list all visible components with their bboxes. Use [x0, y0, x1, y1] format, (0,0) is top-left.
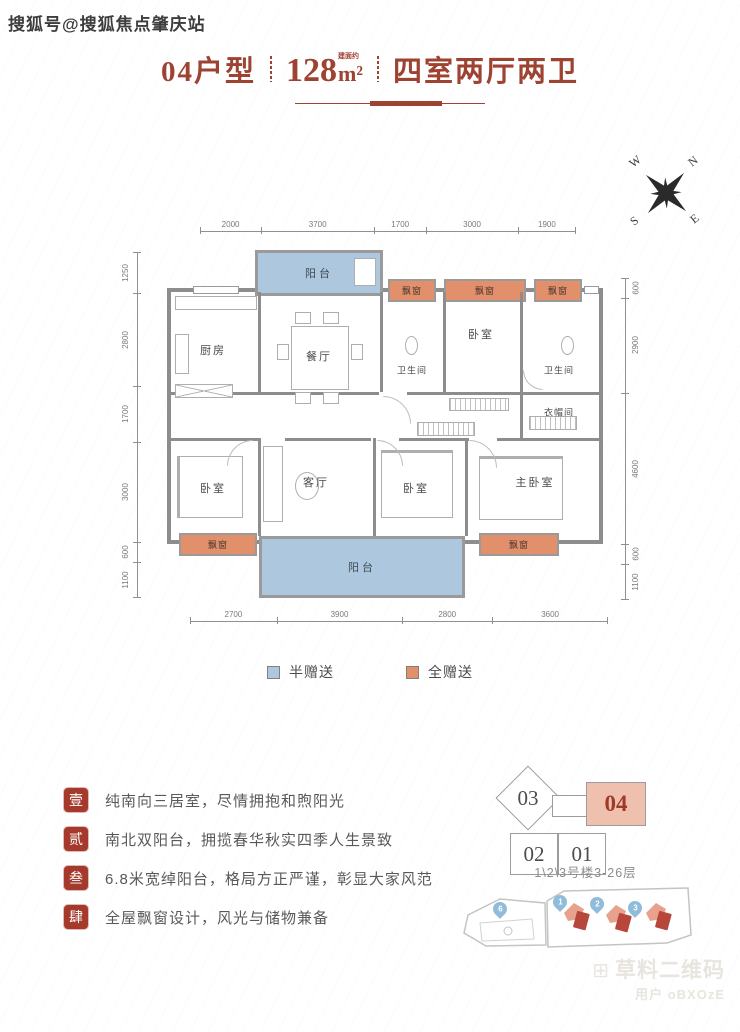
ac-platform	[175, 384, 233, 398]
bay-window-top-1: 飘窗	[388, 279, 436, 302]
bay-window-top-2: 飘窗	[444, 279, 526, 302]
half-gift-label: 半赠送	[289, 662, 334, 682]
room-label-cloakroom: 衣帽间	[544, 406, 574, 419]
chair	[351, 344, 363, 360]
site-plan-illustration	[452, 885, 697, 960]
room-count-label: 四室两厅两卫	[393, 48, 579, 90]
wall	[465, 438, 468, 536]
chair	[295, 392, 311, 404]
bay-label: 飘窗	[548, 284, 568, 297]
qr-watermark: ⊞ 草料二维码 用户 oBXOzE	[585, 958, 725, 1004]
title-divider	[270, 56, 272, 82]
feature-item: 叁 6.8米宽绰阳台，格局方正严谨，彰显大家风范	[64, 866, 433, 890]
page: 搜狐号@搜狐焦点肇庆站 04户型 128 建面约 m² 四室两厅两卫 W N S…	[0, 0, 740, 1032]
title-divider	[377, 56, 379, 82]
seal-numeral-4: 肆	[64, 905, 88, 929]
wardrobe	[417, 422, 475, 436]
window	[193, 286, 239, 294]
room-label-bath-2: 卫生间	[544, 364, 574, 377]
feature-text: 全屋飘窗设计，风光与储物兼备	[105, 907, 329, 928]
toilet	[405, 336, 418, 355]
room-label-living: 客厅	[303, 474, 329, 490]
title-bar: 04户型 128 建面约 m² 四室两厅两卫	[0, 48, 740, 90]
legend-half-gift: 半赠送	[267, 662, 334, 682]
qr-user: 用户 oBXOzE	[585, 987, 725, 1003]
unit-03: 03	[495, 765, 560, 830]
area-note: 建面约	[338, 51, 359, 61]
feature-item: 壹 纯南向三居室，尽情拥抱和煦阳光	[64, 788, 433, 812]
wall	[520, 292, 523, 392]
room-label-master-bedroom: 主卧室	[516, 474, 555, 490]
dimensions-top: 2000 3700 1700 3000 1900	[200, 222, 576, 234]
chair	[323, 312, 339, 324]
floor-plan: 阳台 飘窗 飘窗 飘窗 飘窗 阳台	[167, 250, 603, 602]
area-label: 128 建面约 m²	[286, 52, 363, 90]
compass-n: N	[685, 153, 701, 170]
room-label-bedroom-mid: 卧室	[403, 480, 429, 496]
room-label-dining: 餐厅	[306, 348, 332, 364]
wall	[285, 438, 371, 441]
seal-numeral-2: 贰	[64, 827, 88, 851]
sohu-watermark: 搜狐号@搜狐焦点肇庆站	[8, 10, 206, 35]
feature-item: 肆 全屋飘窗设计，风光与储物兼备	[64, 905, 433, 929]
wall	[399, 438, 469, 441]
kitchen-counter	[175, 296, 257, 310]
bay-label: 飘窗	[402, 284, 422, 297]
dimensions-bottom: 2700 3900 2800 3600	[190, 612, 608, 624]
bay-window-bottom-right: 飘窗	[479, 533, 559, 556]
unit-connector	[552, 795, 588, 817]
chair	[323, 392, 339, 404]
dimensions-right: 600 2900 4600 600 1100	[620, 278, 630, 600]
bay-label: 飘窗	[509, 538, 529, 551]
unit-type-label: 04户型	[161, 48, 256, 90]
qr-grid-icon: ⊞	[592, 959, 610, 984]
wall	[258, 292, 261, 392]
wall	[520, 392, 523, 441]
window	[584, 286, 599, 294]
seal-numeral-1: 壹	[64, 788, 88, 812]
balcony-bottom: 阳台	[259, 536, 465, 598]
balcony-bottom-label: 阳台	[348, 559, 376, 575]
chair	[277, 344, 289, 360]
bay-label: 飘窗	[475, 284, 495, 297]
feature-text: 6.8米宽绰阳台，格局方正严谨，彰显大家风范	[105, 868, 433, 889]
compass-w: W	[626, 152, 644, 170]
washer-icon	[354, 258, 376, 286]
wall	[443, 292, 446, 392]
qr-brand: 草料二维码	[615, 958, 725, 984]
wall	[380, 292, 383, 392]
compass-s: S	[627, 213, 641, 228]
feature-list: 壹 纯南向三居室，尽情拥抱和煦阳光 贰 南北双阳台，拥揽春华秋实四季人生景致 叁…	[64, 788, 433, 944]
legend-full-gift: 全赠送	[406, 662, 473, 682]
room-label-bedroom-top: 卧室	[468, 326, 494, 342]
building-caption: 1\2\3号楼3-26层	[498, 862, 673, 881]
bay-label: 飘窗	[208, 538, 228, 551]
full-gift-swatch	[406, 666, 419, 679]
toilet	[561, 336, 574, 355]
wall	[497, 438, 599, 441]
area-value: 128	[286, 52, 337, 90]
feature-text: 南北双阳台，拥揽春华秋实四季人生景致	[105, 829, 393, 850]
area-unit: 建面约 m²	[338, 61, 363, 87]
bay-window-top-3: 飘窗	[534, 279, 582, 302]
feature-text: 纯南向三居室，尽情拥抱和煦阳光	[105, 790, 345, 811]
stove	[175, 334, 189, 374]
feature-item: 贰 南北双阳台，拥揽春华秋实四季人生景致	[64, 827, 433, 851]
wardrobe	[449, 398, 509, 411]
room-label-bedroom-left: 卧室	[200, 480, 226, 496]
dimensions-left: 1250 2800 1700 3000 600 1100	[132, 252, 142, 598]
bay-window-bottom-left: 飘窗	[179, 533, 257, 556]
compass-e: E	[687, 211, 701, 227]
legend: 半赠送 全赠送	[0, 662, 740, 682]
wall	[258, 438, 261, 536]
balcony-top: 阳台	[255, 250, 383, 296]
half-gift-swatch	[267, 666, 280, 679]
chair	[295, 312, 311, 324]
room-label-kitchen: 厨房	[200, 342, 226, 358]
seal-numeral-3: 叁	[64, 866, 88, 890]
title-underline	[295, 103, 485, 104]
balcony-top-label: 阳台	[305, 265, 333, 281]
full-gift-label: 全赠送	[428, 662, 473, 682]
unit-04: 04	[586, 782, 646, 826]
compass-icon: W N S E	[622, 146, 710, 238]
wall	[407, 392, 599, 395]
room-label-bath-1: 卫生间	[397, 364, 427, 377]
wall	[373, 438, 376, 536]
sofa	[263, 446, 283, 522]
